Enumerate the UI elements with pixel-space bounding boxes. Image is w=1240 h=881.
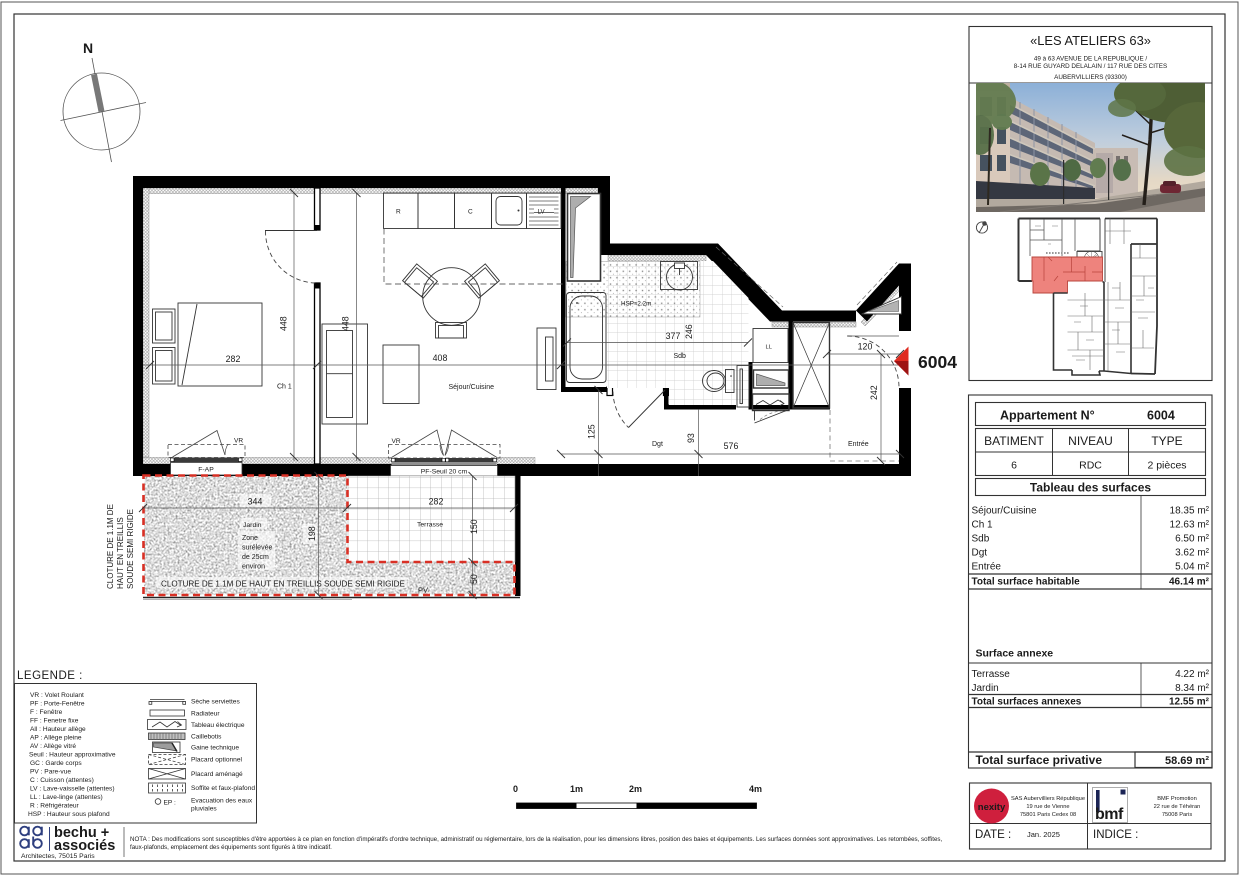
svg-text:BATIMENT: BATIMENT: [984, 434, 1044, 448]
svg-text:bmf: bmf: [1095, 806, 1124, 823]
svg-text:8.34 m²: 8.34 m²: [1175, 683, 1210, 694]
svg-text:LV : Lave-vaisselle (attentes: LV : Lave-vaisselle (attentes): [30, 786, 115, 793]
svg-text:Seuil : Hauteur approximative: Seuil : Hauteur approximative: [29, 752, 116, 759]
svg-text:198: 198: [307, 526, 317, 541]
svg-text:75801 Paris Cedex 08: 75801 Paris Cedex 08: [1020, 812, 1076, 818]
svg-text:Entrée: Entrée: [972, 562, 1002, 573]
svg-text:2 pièces: 2 pièces: [1147, 460, 1186, 472]
svg-text:93: 93: [686, 433, 696, 443]
svg-text:4.22 m²: 4.22 m²: [1175, 669, 1210, 680]
svg-text:HSP≈2.2m: HSP≈2.2m: [621, 301, 651, 308]
svg-text:CLOTURE DE 1.1M DE: CLOTURE DE 1.1M DE: [106, 504, 115, 589]
svg-text:pluviales: pluviales: [191, 806, 217, 813]
svg-text:PF-Seuil 20 cm: PF-Seuil 20 cm: [421, 469, 468, 476]
svg-text:DATE :: DATE :: [975, 829, 1011, 841]
svg-text:F : Fenêtre: F : Fenêtre: [30, 709, 63, 716]
svg-text:22 rue de Téhéran: 22 rue de Téhéran: [1154, 804, 1201, 810]
svg-text:Jan. 2025: Jan. 2025: [1027, 830, 1060, 839]
svg-text:GC : Garde corps: GC : Garde corps: [30, 760, 82, 767]
svg-text:125: 125: [587, 424, 597, 439]
svg-text:Sèche serviettes: Sèche serviettes: [191, 699, 240, 706]
svg-text:0: 0: [513, 784, 518, 794]
svg-text:Zone: Zone: [242, 535, 258, 542]
svg-text:faux-plafonds, emplacement des: faux-plafonds, emplacement des équipemen…: [130, 844, 332, 851]
svg-text:246: 246: [684, 324, 694, 339]
svg-text:Jardin: Jardin: [243, 522, 262, 529]
svg-text:«LES ATELIERS 63»: «LES ATELIERS 63»: [1030, 33, 1151, 48]
svg-text:448: 448: [341, 316, 351, 331]
svg-text:LEGENDE :: LEGENDE :: [17, 670, 83, 682]
svg-text:120: 120: [858, 342, 873, 352]
svg-text:Tableau électrique: Tableau électrique: [191, 722, 245, 729]
svg-text:5.04 m²: 5.04 m²: [1175, 562, 1210, 573]
svg-text:Placard optionnel: Placard optionnel: [191, 757, 242, 764]
svg-text:PV : Pare-vue: PV : Pare-vue: [30, 769, 71, 776]
svg-text:18.35 m²: 18.35 m²: [1170, 506, 1210, 517]
svg-text:All : Hauteur allège: All : Hauteur allège: [30, 726, 86, 733]
svg-text:576: 576: [724, 441, 739, 451]
svg-text:AV : Allège vitré: AV : Allège vitré: [30, 743, 76, 750]
svg-text:12.55 m²: 12.55 m²: [1169, 697, 1210, 708]
svg-text:INDICE :: INDICE :: [1093, 829, 1138, 841]
svg-text:AP : Allège pleine: AP : Allège pleine: [30, 735, 82, 742]
svg-text:Dgt: Dgt: [652, 441, 663, 448]
svg-text:C : Cuisson (attentes): C : Cuisson (attentes): [30, 777, 94, 784]
svg-text:Ch 1: Ch 1: [972, 520, 994, 531]
svg-text:Evacuation des eaux: Evacuation des eaux: [191, 798, 253, 805]
svg-text:associés: associés: [54, 838, 115, 854]
svg-text:Sdb: Sdb: [674, 353, 687, 360]
svg-text:377: 377: [666, 331, 681, 341]
svg-text:CLOTURE DE 1.1M DE HAUT EN TRE: CLOTURE DE 1.1M DE HAUT EN TREILLIS SOUD…: [161, 580, 406, 589]
svg-text:Gaine technique: Gaine technique: [191, 745, 239, 752]
svg-text:Placard aménagé: Placard aménagé: [191, 771, 243, 778]
svg-text:C: C: [468, 209, 473, 216]
svg-text:150: 150: [469, 519, 479, 534]
svg-text:Architectes, 75015 Paris: Architectes, 75015 Paris: [21, 853, 95, 860]
svg-text:NIVEAU: NIVEAU: [1068, 434, 1113, 448]
svg-text:LL : Lave-linge (attentes): LL : Lave-linge (attentes): [30, 794, 103, 801]
svg-text:VR: VR: [234, 438, 243, 445]
svg-text:VR : Volet Roulant: VR : Volet Roulant: [30, 692, 84, 699]
svg-text:Surface annexe: Surface annexe: [976, 648, 1054, 660]
svg-text:HAUT EN TREILLIS: HAUT EN TREILLIS: [116, 517, 125, 589]
svg-text:NOTA : Des modifications sont: NOTA : Des modifications sont susceptibl…: [130, 836, 943, 843]
svg-text:Appartement N°: Appartement N°: [1000, 409, 1095, 423]
svg-text:Soffite et faux-plafond: Soffite et faux-plafond: [191, 785, 255, 792]
svg-text:R : Réfrigérateur: R : Réfrigérateur: [30, 803, 80, 810]
svg-text:Total surface habitable: Total surface habitable: [972, 577, 1081, 588]
svg-text:TYPE: TYPE: [1151, 434, 1182, 448]
svg-text:R: R: [396, 209, 401, 216]
svg-text:6004: 6004: [918, 352, 957, 372]
svg-text:EP :: EP :: [164, 800, 177, 807]
svg-text:448: 448: [279, 316, 289, 331]
svg-text:242: 242: [869, 385, 879, 400]
svg-text:Terrasse: Terrasse: [972, 669, 1011, 680]
svg-text:282: 282: [226, 354, 241, 364]
svg-text:2m: 2m: [629, 784, 642, 794]
svg-text:1m: 1m: [570, 784, 583, 794]
svg-text:Caillebotis: Caillebotis: [191, 734, 222, 741]
svg-text:Jardin: Jardin: [972, 683, 999, 694]
svg-text:Total surfaces annexes: Total surfaces annexes: [972, 697, 1082, 708]
svg-text:SAS Aubervilliers République: SAS Aubervilliers République: [1011, 796, 1085, 802]
svg-text:AUBERVILLIERS (93300): AUBERVILLIERS (93300): [1054, 74, 1127, 81]
svg-text:58.69 m²: 58.69 m²: [1165, 755, 1209, 767]
svg-text:VR: VR: [392, 438, 401, 445]
svg-text:FF : Fenetre fixe: FF : Fenetre fixe: [30, 718, 79, 725]
svg-text:Terrasse: Terrasse: [417, 522, 443, 529]
svg-text:Séjour/Cuisine: Séjour/Cuisine: [449, 384, 495, 391]
svg-text:344: 344: [248, 497, 263, 507]
svg-text:6.50 m²: 6.50 m²: [1175, 534, 1210, 545]
svg-text:BMF Promotion: BMF Promotion: [1157, 796, 1197, 802]
svg-text:LL: LL: [766, 345, 773, 351]
svg-text:environ: environ: [242, 564, 265, 571]
svg-text:Sdb: Sdb: [972, 534, 990, 545]
svg-text:Séjour/Cuisine: Séjour/Cuisine: [972, 506, 1037, 517]
svg-text:46.14 m²: 46.14 m²: [1169, 577, 1210, 588]
svg-text:PV: PV: [418, 586, 428, 595]
svg-text:nexity: nexity: [978, 802, 1006, 813]
svg-text:408: 408: [433, 353, 448, 363]
svg-text:Total surface privative: Total surface privative: [976, 753, 1103, 767]
svg-text:N: N: [83, 40, 93, 56]
svg-text:19 rue de Vienne: 19 rue de Vienne: [1026, 804, 1069, 810]
svg-text:49 à 63 AVENUE DE LA REPUBLIQU: 49 à 63 AVENUE DE LA REPUBLIQUE /: [1034, 56, 1148, 63]
svg-text:6004: 6004: [1147, 409, 1175, 423]
svg-text:8-14 RUE GUYARD DELALAIN / 117: 8-14 RUE GUYARD DELALAIN / 117 RUE DES C…: [1014, 63, 1167, 70]
svg-text:Dgt: Dgt: [972, 548, 988, 559]
svg-text:50: 50: [469, 574, 479, 584]
svg-text:Ch 1: Ch 1: [277, 384, 292, 391]
svg-text:282: 282: [429, 497, 444, 507]
svg-text:4m: 4m: [749, 784, 762, 794]
svg-text:6: 6: [1011, 460, 1017, 472]
svg-text:de 25cm: de 25cm: [242, 554, 269, 561]
svg-text:LV: LV: [538, 209, 546, 216]
svg-text:Tableau des surfaces: Tableau des surfaces: [1030, 481, 1151, 495]
svg-text:surélevée: surélevée: [242, 545, 272, 552]
svg-text:SOUDE SEMI RIGIDE: SOUDE SEMI RIGIDE: [126, 509, 135, 589]
svg-text:RDC: RDC: [1079, 460, 1102, 472]
svg-text:PF : Porte-Fenêtre: PF : Porte-Fenêtre: [30, 701, 85, 708]
svg-text:F-AP: F-AP: [198, 467, 214, 474]
svg-text:Radiateur: Radiateur: [191, 711, 220, 718]
svg-text:HSP : Hauteur sous plafond: HSP : Hauteur sous plafond: [28, 811, 110, 818]
svg-text:3.62 m²: 3.62 m²: [1175, 548, 1210, 559]
svg-text:75008 Paris: 75008 Paris: [1162, 812, 1193, 818]
svg-text:Entrée: Entrée: [848, 441, 869, 448]
svg-text:12.63 m²: 12.63 m²: [1170, 520, 1210, 531]
